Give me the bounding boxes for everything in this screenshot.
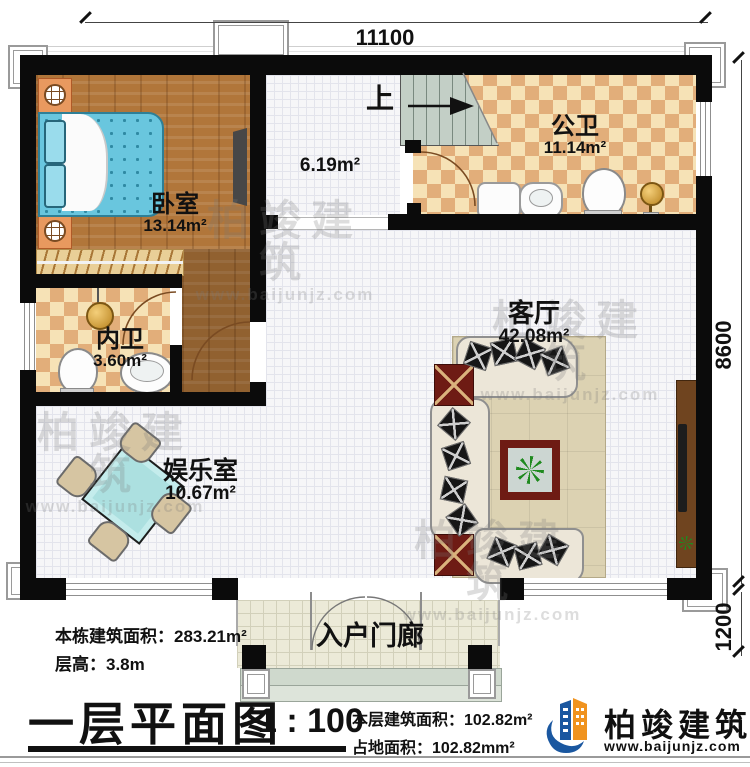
wardrobe-rod bbox=[37, 261, 183, 264]
wall-bedroom-right bbox=[250, 75, 266, 322]
wall-inner-bath-bottom bbox=[20, 392, 266, 406]
wardrobe-hangers bbox=[36, 249, 184, 276]
hall-area: 6.19m² bbox=[275, 156, 385, 176]
table-lamp-icon bbox=[44, 84, 66, 106]
window-bottom-left bbox=[66, 578, 212, 600]
wall-left bbox=[20, 55, 36, 303]
tv-icon bbox=[678, 424, 687, 512]
building-area-stat: 本栋建筑面积：283.21m² bbox=[55, 622, 247, 647]
floor-lamp-icon bbox=[640, 182, 664, 206]
dimension-right-value: 8600 bbox=[711, 315, 737, 375]
page-border-line bbox=[0, 756, 750, 758]
floor-area-stat: 本层建筑面积：102.82m² bbox=[352, 706, 533, 730]
porch-label: 入户门廊 bbox=[295, 622, 445, 650]
porch-pillar bbox=[468, 645, 492, 669]
dimension-porch-value: 1200 bbox=[711, 597, 737, 657]
public-bath-area: 11.14m² bbox=[520, 139, 630, 157]
porch-pier bbox=[468, 669, 496, 699]
page-border-line bbox=[0, 762, 750, 763]
window-bottom-right bbox=[524, 578, 667, 600]
wall-bottom bbox=[212, 578, 238, 600]
entertainment-name: 娱乐室 bbox=[138, 458, 263, 484]
plan-title: 一层平面图 bbox=[28, 688, 283, 754]
public-bath-label: 公卫 11.14m² bbox=[520, 114, 630, 157]
brand-url: www.baijunjz.com bbox=[604, 738, 741, 754]
sofa-cushion bbox=[440, 476, 468, 504]
floor-height-stat: 层高：3.8m bbox=[55, 650, 145, 675]
coffee-table bbox=[500, 440, 560, 500]
bedroom-tv bbox=[233, 128, 247, 206]
wall-bedroom-bath bbox=[20, 274, 182, 288]
window-right bbox=[696, 102, 712, 176]
end-table bbox=[434, 534, 474, 576]
wall-bottom bbox=[500, 578, 524, 600]
washer-drum bbox=[529, 189, 553, 207]
wall-right bbox=[696, 176, 712, 600]
dimension-line-top bbox=[85, 22, 708, 23]
roof-sill-line bbox=[36, 51, 696, 52]
inner-bath-name: 内卫 bbox=[70, 327, 170, 352]
bedroom-label: 卧室 13.14m² bbox=[120, 192, 230, 235]
living-name: 客厅 bbox=[478, 300, 590, 327]
wall-bottom bbox=[20, 578, 66, 600]
brand-logo-icon bbox=[540, 694, 598, 756]
porch-side-line bbox=[498, 600, 500, 646]
inner-bath-area: 3.60m² bbox=[70, 352, 170, 370]
wall-stair-stub bbox=[405, 140, 421, 153]
logo-building-blue bbox=[560, 700, 571, 740]
table-lamp-icon bbox=[44, 220, 66, 242]
window-left bbox=[20, 303, 36, 370]
public-bath-name: 公卫 bbox=[520, 114, 630, 139]
bedroom-corridor-floor bbox=[182, 249, 250, 406]
nightstand bbox=[38, 214, 72, 249]
wall-top bbox=[20, 55, 712, 75]
wall-stair-stub bbox=[407, 203, 421, 216]
bed-blanket bbox=[62, 114, 108, 211]
hall-label: 6.19m² bbox=[275, 156, 385, 176]
wall-hall-bottom bbox=[250, 215, 278, 229]
entertainment-area: 10.67m² bbox=[138, 484, 263, 504]
title-underline bbox=[28, 746, 346, 752]
bedroom-area: 13.14m² bbox=[120, 217, 230, 235]
entertainment-label: 娱乐室 10.67m² bbox=[138, 458, 263, 504]
small-plant-icon bbox=[679, 536, 693, 550]
plant-icon bbox=[516, 456, 544, 484]
nightstand bbox=[38, 78, 72, 113]
dimension-tick bbox=[732, 51, 745, 64]
end-table bbox=[434, 364, 474, 406]
bedroom-name: 卧室 bbox=[120, 192, 230, 217]
window-frame-top bbox=[213, 20, 289, 60]
cased-opening bbox=[278, 217, 388, 230]
living-area: 42.08m² bbox=[478, 327, 590, 347]
pillow bbox=[44, 164, 66, 208]
logo-building-orange bbox=[573, 698, 587, 740]
stairs-up-label: 上 bbox=[360, 84, 400, 113]
land-area-stat: 占地面积：102.82mm² bbox=[352, 734, 515, 758]
wall-public-bath-bottom bbox=[388, 214, 696, 230]
plan-scale: 1 : 100 bbox=[258, 702, 364, 741]
floor-plan-page: 11100 8600 1200 bbox=[0, 0, 750, 767]
inner-bath-label: 内卫 3.60m² bbox=[70, 327, 170, 370]
wall-bottom bbox=[667, 578, 712, 600]
living-label: 客厅 42.08m² bbox=[478, 300, 590, 347]
porch-pillar bbox=[242, 645, 266, 669]
wall-inner-bath-right bbox=[170, 345, 182, 392]
wall-right bbox=[696, 55, 712, 102]
pillow bbox=[44, 120, 66, 164]
dimension-line-right bbox=[741, 60, 742, 584]
dimension-top-value: 11100 bbox=[330, 25, 440, 51]
